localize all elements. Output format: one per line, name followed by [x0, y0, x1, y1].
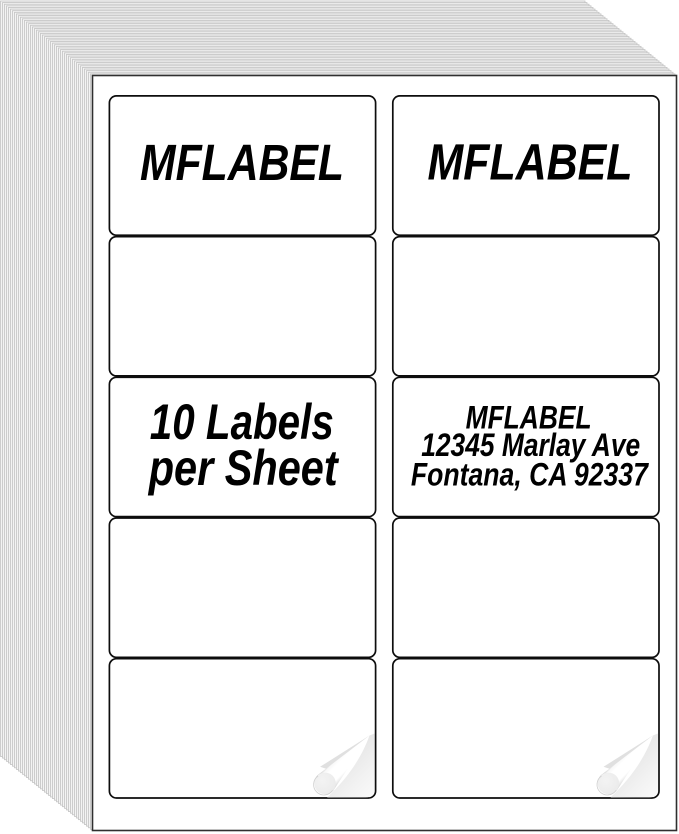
svg-text:Fontana, CA 92337: Fontana, CA 92337 [411, 457, 650, 493]
svg-text:MFLABEL: MFLABEL [428, 134, 633, 191]
svg-text:per Sheet: per Sheet [147, 440, 340, 496]
svg-text:MFLABEL: MFLABEL [140, 134, 344, 191]
